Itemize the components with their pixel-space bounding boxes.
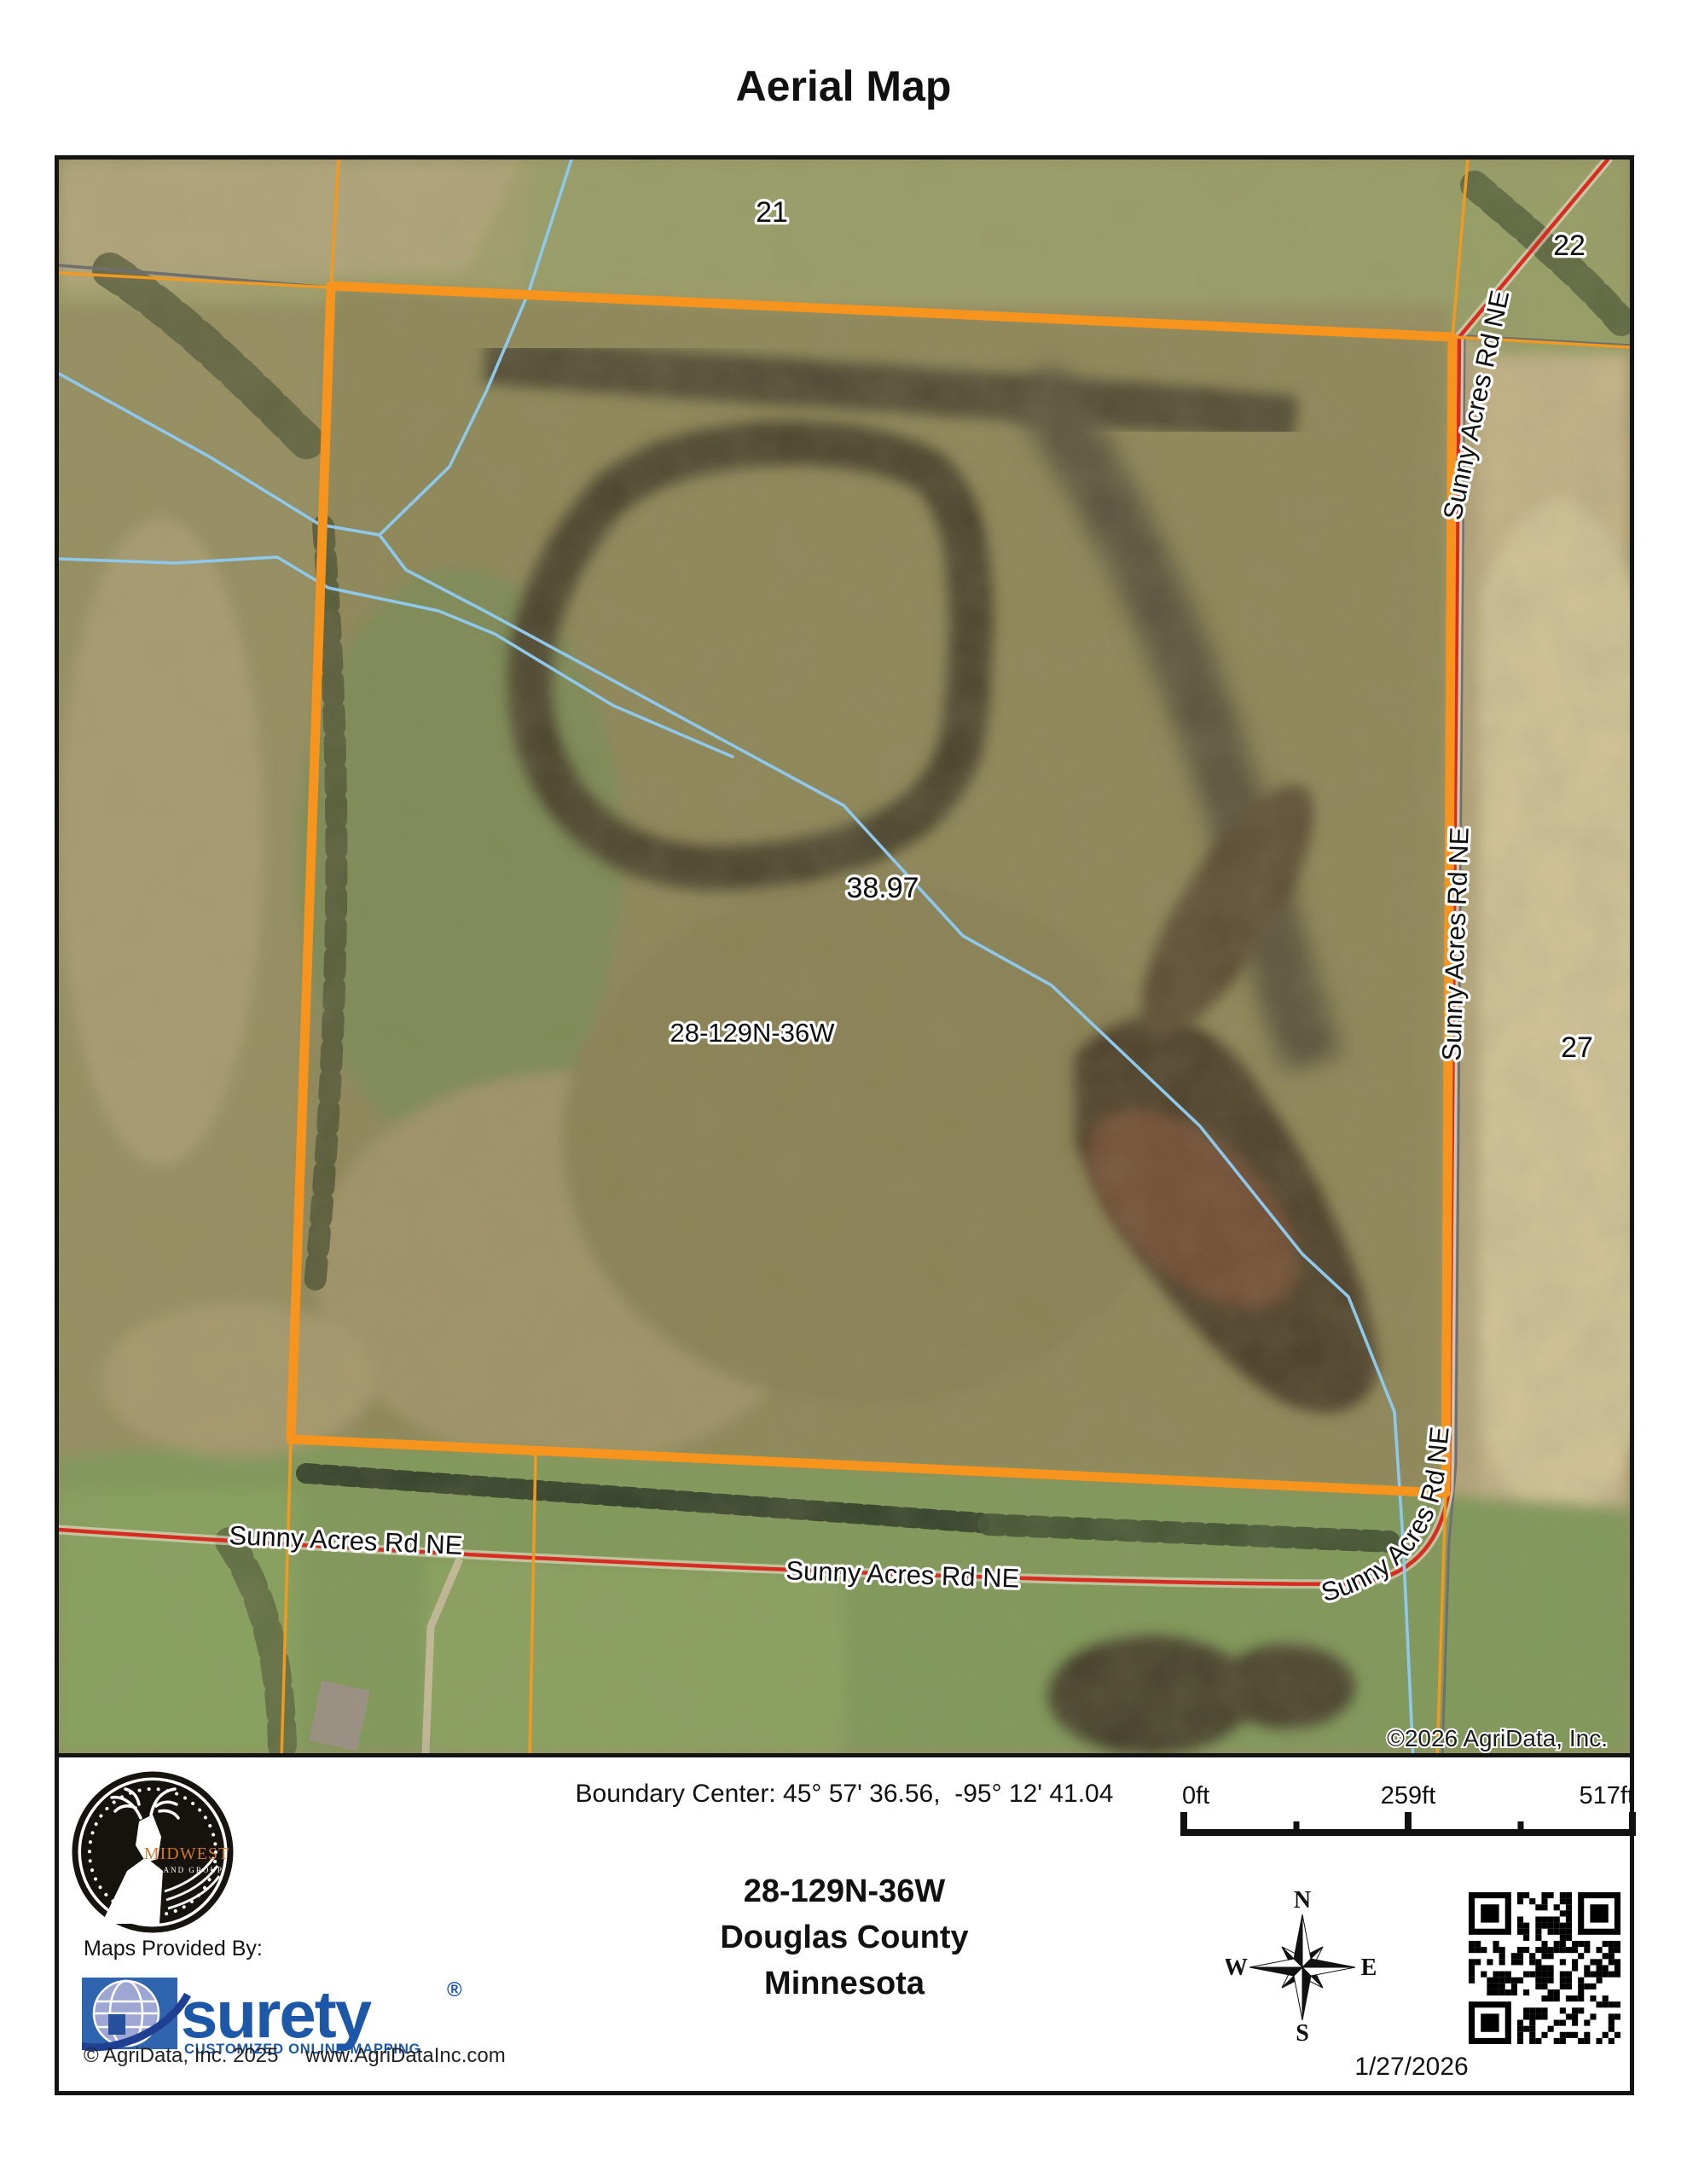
scale-label-start: 0ft (1182, 1783, 1209, 1809)
scale-bar: 0ft 259ft 517ft (1180, 1783, 1636, 1839)
logo-brand-text: MIDWEST (144, 1844, 229, 1863)
texture-grain (59, 160, 1630, 1753)
map-copyright: ©2026 AgriData, Inc. (1387, 1725, 1608, 1751)
surety-wordmark: surety (181, 1977, 372, 2052)
aerial-map-canvas: 21 22 27 38.97 28-129N-36W Sunny Acres R… (55, 155, 1634, 1757)
map-date: 1/27/2026 (1318, 2053, 1505, 2082)
globe-icon (82, 1978, 188, 2049)
scale-label-end: 517ft (1580, 1783, 1635, 1809)
midwest-land-group-logo: MIDWEST LAND GROUP (72, 1771, 234, 1933)
scale-bar-line (1180, 1812, 1636, 1833)
scale-label-mid: 259ft (1381, 1783, 1436, 1809)
aerial-imagery: 21 22 27 38.97 28-129N-36W Sunny Acres R… (59, 160, 1630, 1753)
compass-west-label: W (1226, 1955, 1248, 1981)
registered-mark: ® (447, 1978, 462, 2001)
compass-rose-icon: N S W E (1226, 1891, 1379, 2044)
location-county: Douglas County (588, 1916, 1100, 1959)
compass-east-label: E (1361, 1955, 1377, 1981)
section-label-22: 22 (1553, 229, 1586, 262)
logo-suffix-text: LAND GROUP (157, 1866, 223, 1874)
location-str: 28-129N-36W (588, 1870, 1100, 1913)
qr-code (1469, 1892, 1620, 2044)
section-label-21: 21 (756, 196, 788, 229)
agridata-copyright: © AgriData, Inc. 2025 (84, 2044, 278, 2068)
acreage-label: 38.97 (846, 872, 919, 904)
parcel-id-label: 28-129N-36W (670, 1018, 836, 1048)
maps-provided-by-label: Maps Provided By: (84, 1937, 263, 1961)
compass-north-label: N (1294, 1891, 1311, 1914)
compass-south-label: S (1296, 2020, 1309, 2044)
page-title: Aerial Map (0, 61, 1687, 111)
boundary-center-coordinates: Boundary Center: 45° 57' 36.56, -95° 12'… (461, 1780, 1228, 1809)
agridata-website: www.AgriDataInc.com (305, 2044, 506, 2068)
section-label-27: 27 (1561, 1031, 1593, 1064)
location-state: Minnesota (588, 1962, 1100, 2005)
